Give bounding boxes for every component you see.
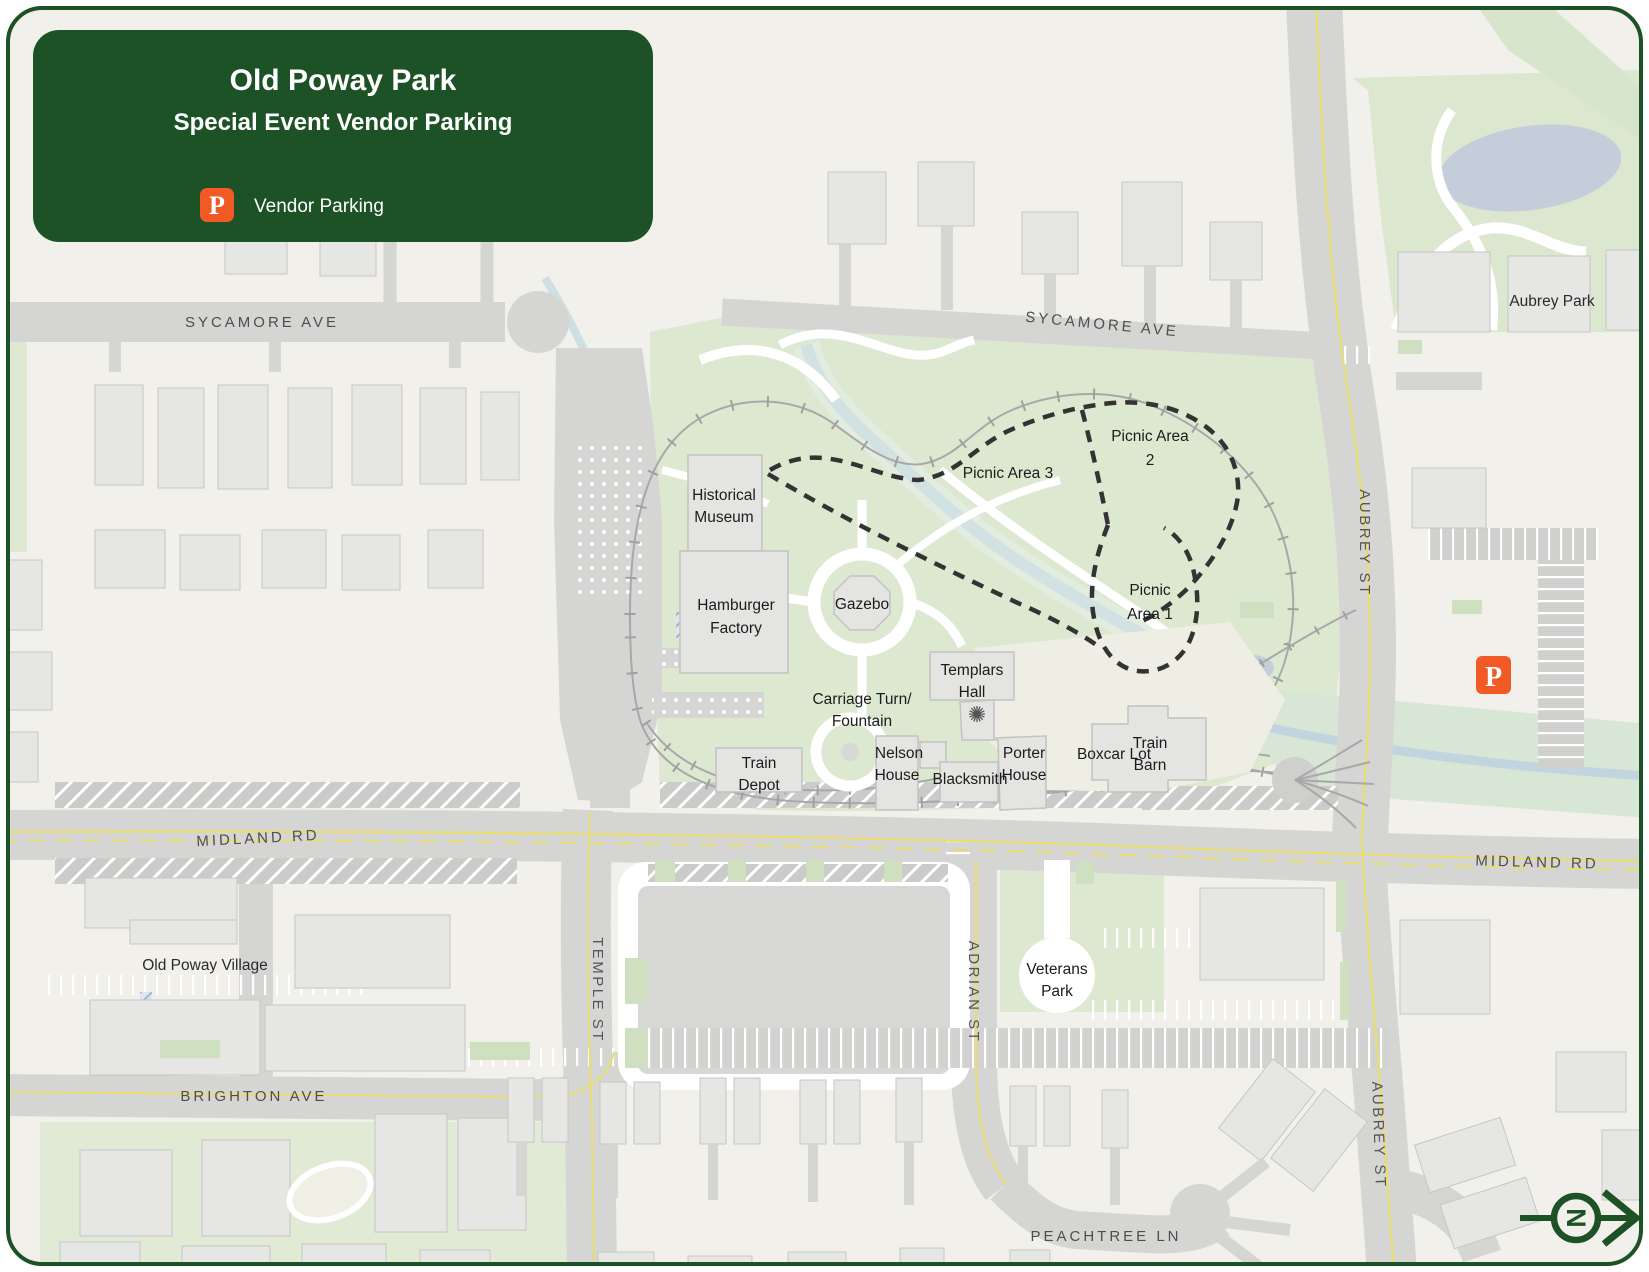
green-patch	[1240, 602, 1274, 618]
building	[900, 1248, 944, 1272]
green-patch	[470, 1042, 530, 1060]
label-porter-2: House	[1002, 767, 1047, 784]
east-lot-stalls-2-lines	[1538, 560, 1584, 768]
label-depot-1: Train	[742, 755, 777, 772]
green-patch	[1076, 862, 1094, 884]
label-picnic1-2: Area 1	[1127, 606, 1173, 623]
building	[918, 162, 974, 226]
building	[80, 1150, 172, 1236]
building	[634, 1082, 660, 1144]
building	[1044, 1086, 1070, 1146]
building	[1400, 920, 1490, 1014]
label-aubrey-park: Aubrey Park	[1509, 293, 1595, 310]
page-subtitle: Special Event Vendor Parking	[174, 109, 513, 136]
building	[1010, 1086, 1036, 1146]
label-porter-1: Porter	[1003, 745, 1045, 762]
building	[375, 1114, 447, 1232]
label-hamburger-1: Hamburger	[697, 597, 775, 614]
label-blacksmith: Blacksmith	[933, 771, 1008, 788]
building	[734, 1078, 760, 1144]
building	[1102, 1090, 1128, 1148]
building	[302, 1244, 386, 1272]
east-lot-stalls-1-lines	[1428, 528, 1598, 560]
building	[352, 385, 402, 485]
building	[1200, 888, 1324, 980]
green-patch	[1452, 600, 1482, 614]
label-templars-2: Hall	[959, 684, 986, 701]
building	[1022, 212, 1078, 274]
sycamore-culdesac	[507, 291, 569, 353]
label-hamburger-2: Factory	[710, 620, 762, 637]
street-label-adrian: ADRIAN ST	[965, 941, 982, 1044]
label-picnic2-1: Picnic Area	[1111, 428, 1189, 445]
green-patch	[806, 860, 824, 882]
building	[600, 1082, 626, 1144]
building	[262, 530, 326, 588]
building	[295, 915, 450, 988]
veterans-path	[1044, 860, 1070, 938]
page-title: Old Poway Park	[230, 64, 457, 97]
building	[834, 1080, 860, 1144]
building	[828, 172, 886, 244]
label-barn-2: Barn	[1134, 757, 1167, 774]
green-patch	[1398, 340, 1422, 354]
label-old-poway-village: Old Poway Village	[142, 957, 268, 974]
tree-row-3-dots	[652, 692, 764, 718]
label-veterans-1: Veterans	[1026, 961, 1087, 978]
label-nelson-1: Nelson	[875, 745, 923, 762]
map-canvas: ✺ SYCAMORE AVE SYCAMORE AVE AUBREY ST AU…	[0, 0, 1649, 1272]
label-picnic3: Picnic Area 3	[963, 465, 1053, 482]
building	[1210, 222, 1262, 280]
green-patch	[655, 860, 675, 882]
building	[265, 1005, 465, 1071]
veterans-se-stalls	[1085, 1000, 1345, 1020]
building	[218, 385, 268, 489]
building	[1412, 468, 1486, 528]
building	[508, 1078, 534, 1142]
building	[1398, 252, 1490, 332]
park-map: ✺ SYCAMORE AVE SYCAMORE AVE AUBREY ST AU…	[0, 0, 1649, 1272]
label-carriage-2: Fountain	[832, 713, 892, 730]
legend-parking-symbol: P	[209, 191, 225, 220]
header-panel: Old Poway Park Special Event Vendor Park…	[33, 30, 653, 242]
label-depot-2: Depot	[738, 777, 780, 794]
building	[428, 530, 483, 588]
label-gazebo: Gazebo	[835, 596, 889, 613]
building	[800, 1080, 826, 1144]
legend-parking-label: Vendor Parking	[254, 196, 384, 217]
label-templars-1: Templars	[941, 662, 1004, 679]
label-historical-1: Historical	[692, 487, 756, 504]
green-patch	[884, 860, 902, 882]
building	[202, 1140, 290, 1236]
building	[420, 388, 466, 484]
driveway	[1226, 1222, 1290, 1230]
building	[1010, 1250, 1050, 1272]
label-historical-2: Museum	[694, 509, 753, 526]
adrian-crosswalk	[946, 834, 970, 862]
green-patch	[160, 1040, 220, 1058]
building	[700, 1078, 726, 1144]
building	[288, 388, 332, 488]
building	[542, 1078, 568, 1142]
vendor-parking-marker-symbol: P	[1485, 662, 1502, 693]
building	[4, 652, 52, 710]
building	[182, 1246, 270, 1272]
green-patch	[1340, 962, 1350, 1020]
label-picnic1-1b: Picnic	[1129, 582, 1171, 599]
windmill-icon: ✺	[968, 702, 986, 727]
building	[60, 1242, 140, 1272]
street-label-peachtree: PEACHTREE LN	[1030, 1228, 1181, 1245]
building	[896, 1078, 922, 1142]
building	[180, 535, 240, 590]
label-barn-1: Train	[1133, 735, 1168, 752]
building	[342, 535, 400, 590]
building	[1556, 1052, 1626, 1112]
building	[481, 392, 519, 480]
compass-north-letter: N	[1561, 1208, 1591, 1228]
green-patch	[728, 860, 746, 882]
building	[95, 530, 165, 588]
green-patch	[625, 1028, 647, 1068]
building	[158, 388, 204, 488]
label-picnic2-2: 2	[1146, 452, 1155, 469]
building	[420, 1250, 490, 1272]
building	[130, 920, 237, 944]
green-patch	[625, 958, 647, 1004]
vendor-parking-marker: P	[1476, 656, 1511, 694]
building	[95, 385, 143, 485]
label-veterans-2: Park	[1041, 983, 1073, 1000]
green-patch	[1336, 880, 1346, 932]
street-label-sycamore-west: SYCAMORE AVE	[185, 314, 339, 331]
street-label-temple: TEMPLE ST	[589, 937, 606, 1043]
fountain	[841, 743, 859, 761]
building	[1122, 182, 1182, 266]
street-label-aubrey-north: AUBREY ST	[1356, 489, 1373, 596]
midland-n-stalls-w	[55, 782, 520, 808]
label-carriage-1: Carriage Turn/	[812, 691, 912, 708]
west-edge-green	[10, 330, 27, 552]
block-hatch	[648, 864, 948, 882]
label-nelson-2: House	[875, 767, 920, 784]
building	[0, 732, 38, 782]
building	[90, 1000, 260, 1075]
street-label-brighton: BRIGHTON AVE	[180, 1088, 327, 1105]
street-label-midland-east: MIDLAND RD	[1475, 852, 1599, 872]
